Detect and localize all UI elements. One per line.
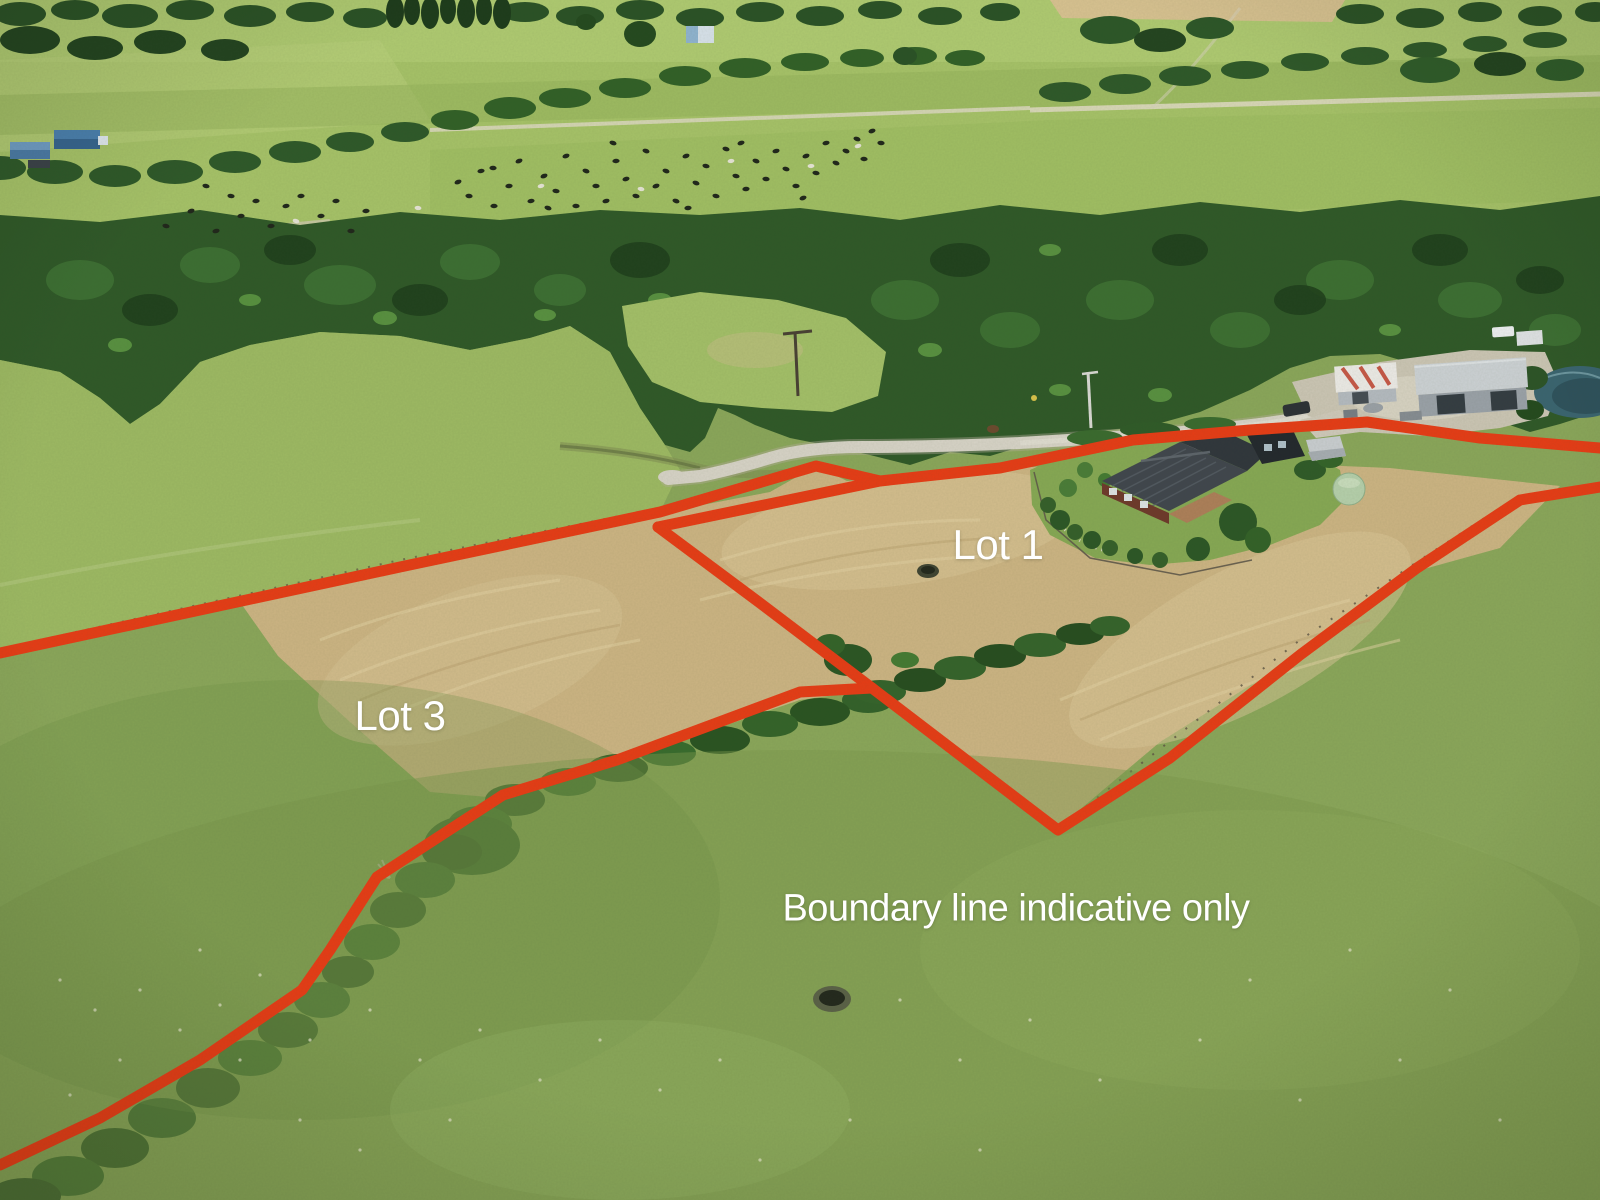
aerial-property-photo: Lot 1 Lot 3 Boundary line indicative onl… xyxy=(0,0,1600,1200)
vignette xyxy=(0,0,1600,1200)
lot3-label: Lot 3 xyxy=(355,692,446,740)
photo-scene xyxy=(0,0,1600,1200)
boundary-disclaimer-label: Boundary line indicative only xyxy=(782,888,1249,931)
lot1-label: Lot 1 xyxy=(953,521,1044,569)
